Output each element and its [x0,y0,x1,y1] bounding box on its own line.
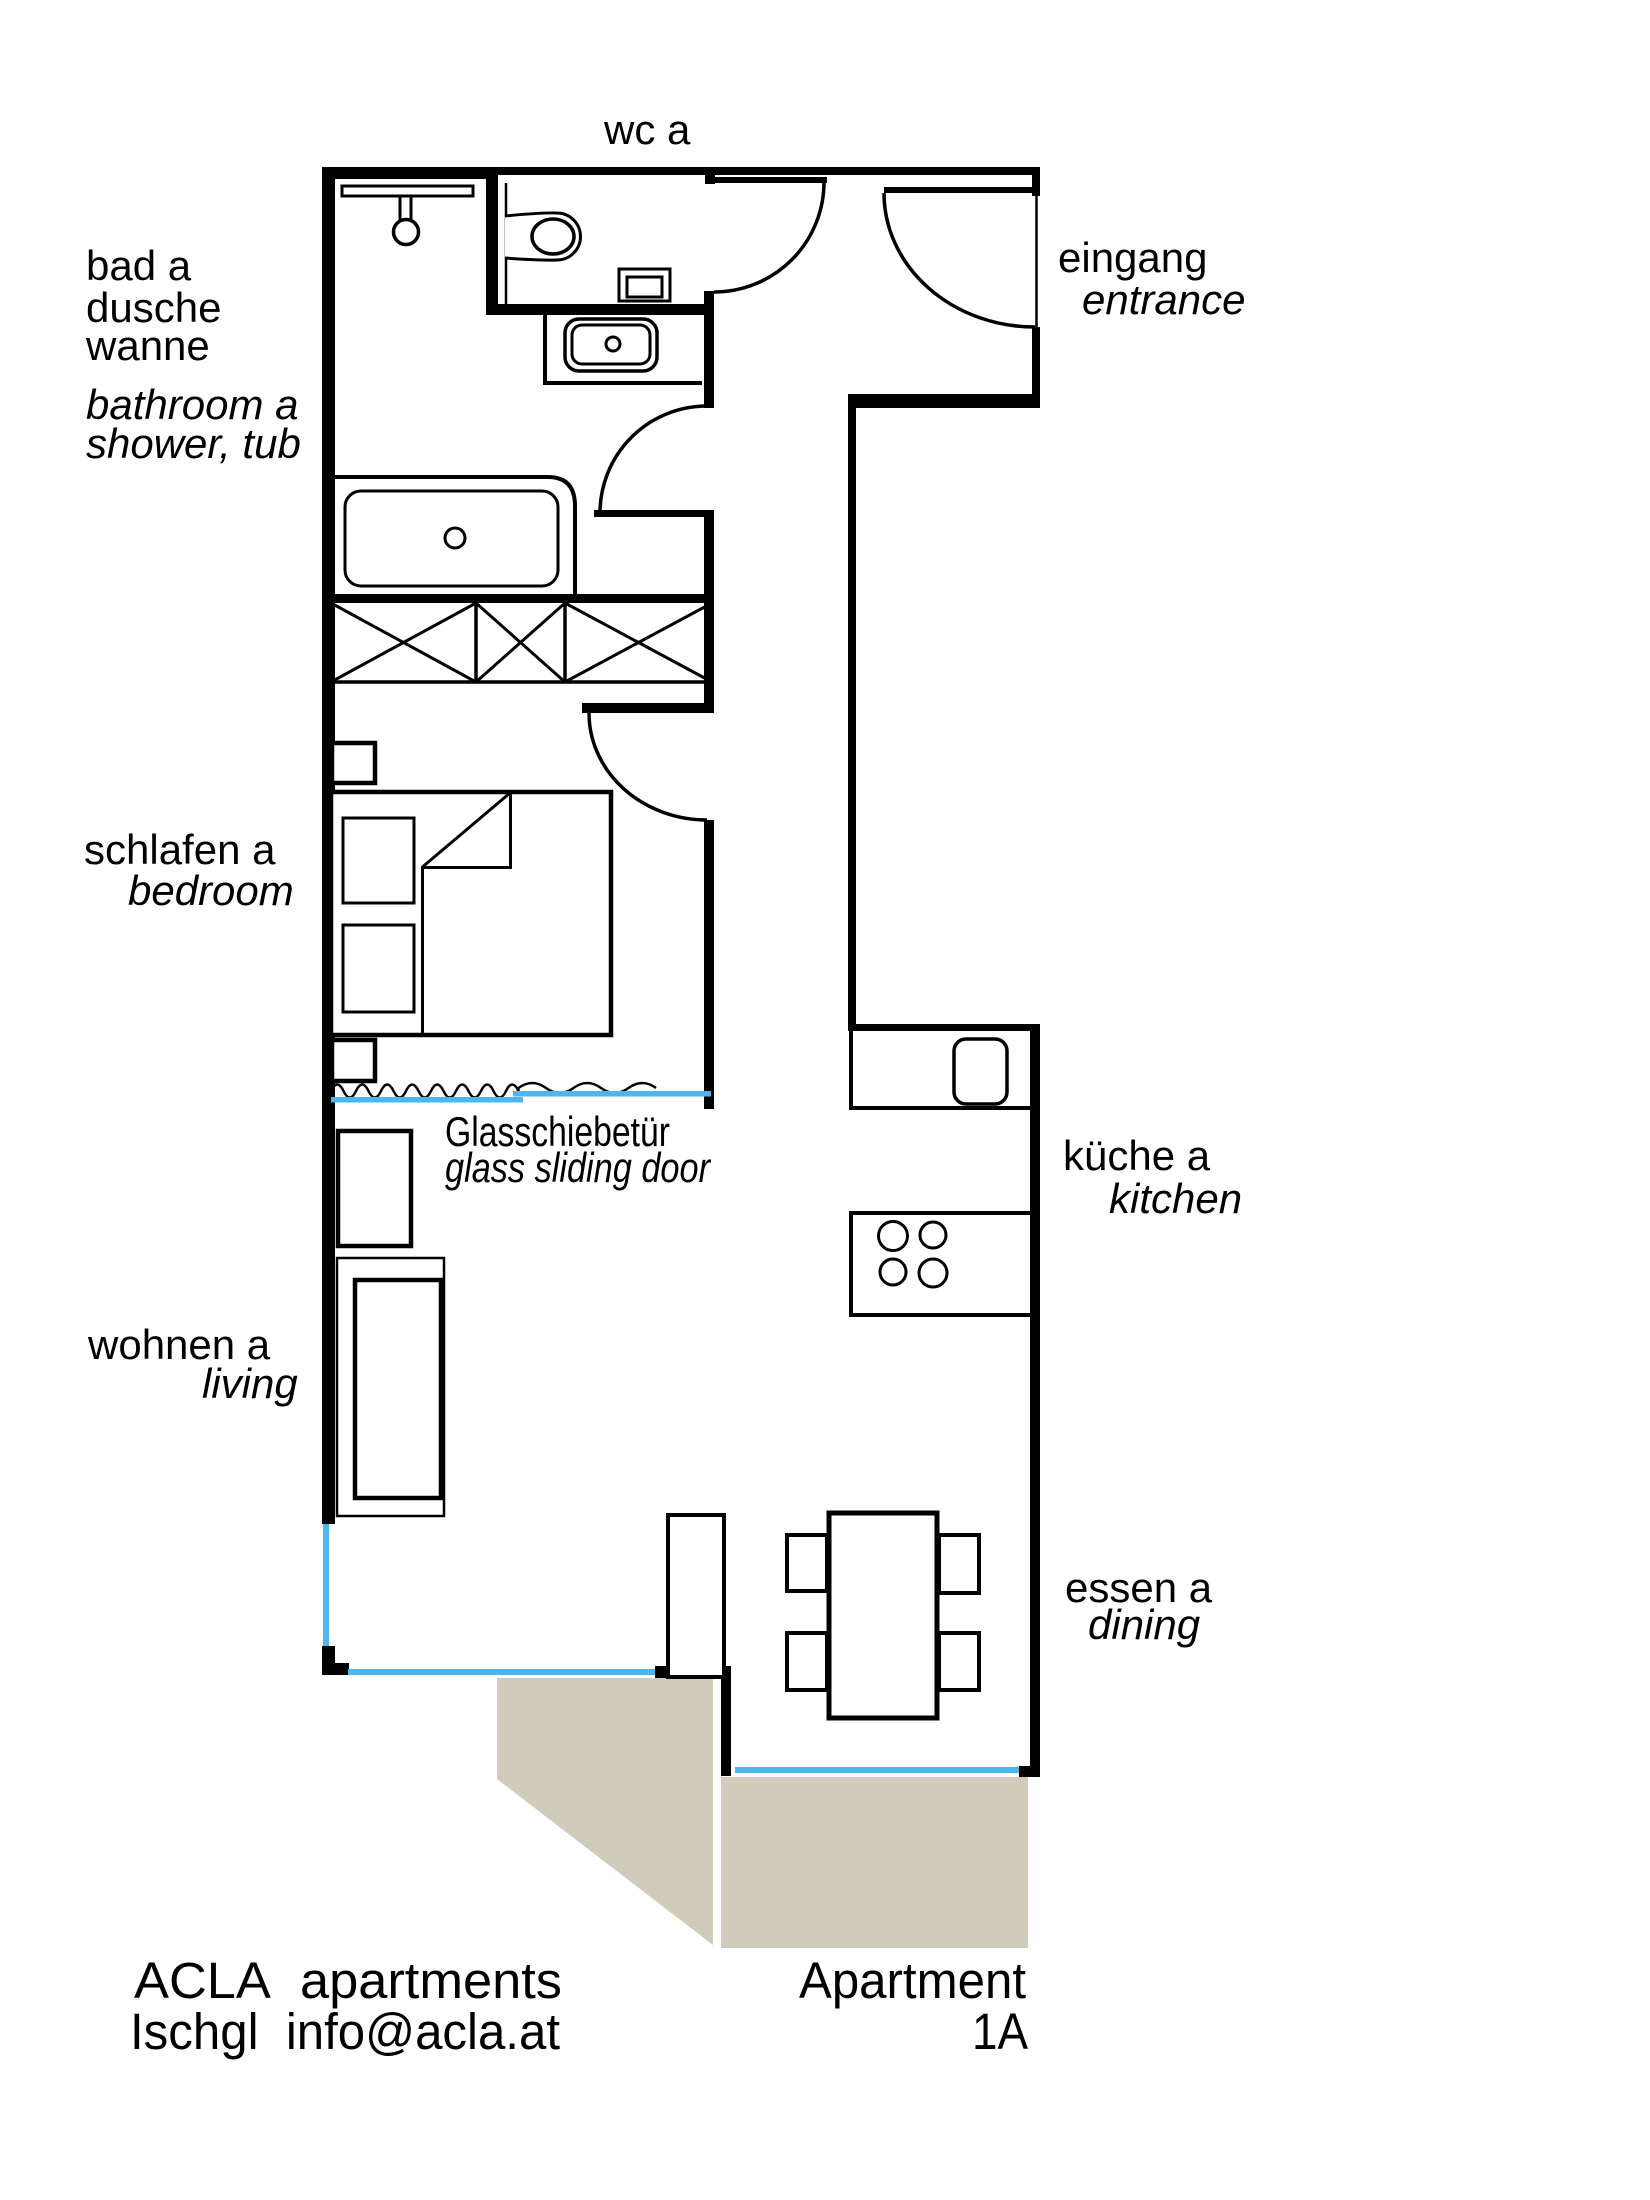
svg-text:entrance: entrance [1082,276,1245,323]
svg-text:kitchen: kitchen [1109,1175,1242,1222]
svg-text:schlafen a: schlafen a [84,826,276,873]
svg-text:Ischgl info@acla.at: Ischgl info@acla.at [130,2003,560,2060]
svg-text:wc a: wc a [603,106,691,153]
svg-text:bedroom: bedroom [128,867,294,914]
svg-text:1A: 1A [972,2003,1028,2060]
svg-text:eingang: eingang [1058,234,1207,281]
svg-text:wanne: wanne [85,322,210,369]
svg-text:living: living [202,1360,298,1407]
svg-text:küche a: küche a [1063,1132,1211,1179]
svg-text:glass sliding door: glass sliding door [445,1144,712,1191]
svg-text:Apartment: Apartment [799,1952,1026,2009]
svg-text:bad a: bad a [86,242,192,289]
svg-text:dining: dining [1088,1601,1200,1648]
svg-text:ACLA apartments: ACLA apartments [134,1952,562,2009]
svg-text:shower, tub: shower, tub [86,420,301,467]
